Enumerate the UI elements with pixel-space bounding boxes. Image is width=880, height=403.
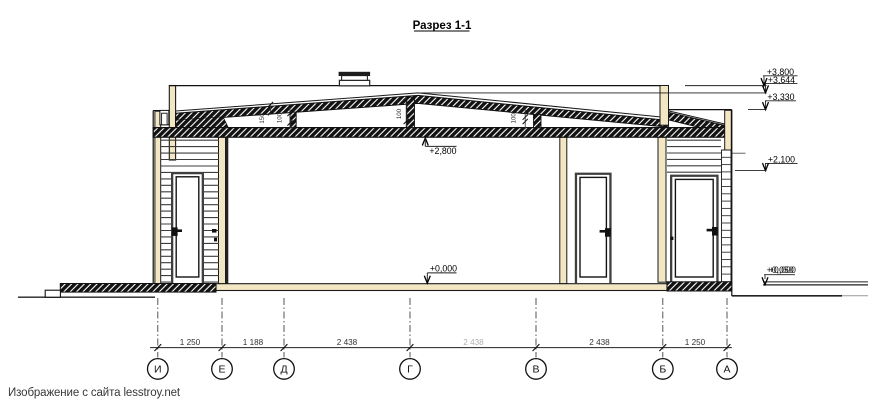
svg-text:2 438: 2 438 xyxy=(463,338,484,347)
svg-text:100: 100 xyxy=(277,112,284,123)
svg-text:Б: Б xyxy=(659,364,666,376)
svg-text:Е: Е xyxy=(218,364,225,376)
svg-text:Г: Г xyxy=(407,364,413,376)
svg-text:+0,000: +0,000 xyxy=(769,265,796,275)
svg-text:1 188: 1 188 xyxy=(243,338,264,347)
svg-text:А: А xyxy=(723,364,730,376)
svg-text:100: 100 xyxy=(511,113,518,124)
svg-text:+0,000: +0,000 xyxy=(430,263,457,273)
svg-text:1 250: 1 250 xyxy=(685,338,706,347)
svg-text:100: 100 xyxy=(396,108,403,119)
svg-text:150: 150 xyxy=(259,113,266,124)
svg-text:2 438: 2 438 xyxy=(337,338,358,347)
svg-text:Д: Д xyxy=(280,364,287,376)
svg-text:1 250: 1 250 xyxy=(180,338,201,347)
svg-text:+2,800: +2,800 xyxy=(429,146,456,156)
svg-text:Разрез 1-1: Разрез 1-1 xyxy=(413,20,472,32)
svg-text:В: В xyxy=(532,364,539,376)
svg-text:2 438: 2 438 xyxy=(589,338,610,347)
svg-text:И: И xyxy=(154,364,162,376)
svg-text:Изображение с сайта lesstroy.n: Изображение с сайта lesstroy.net xyxy=(8,387,181,399)
